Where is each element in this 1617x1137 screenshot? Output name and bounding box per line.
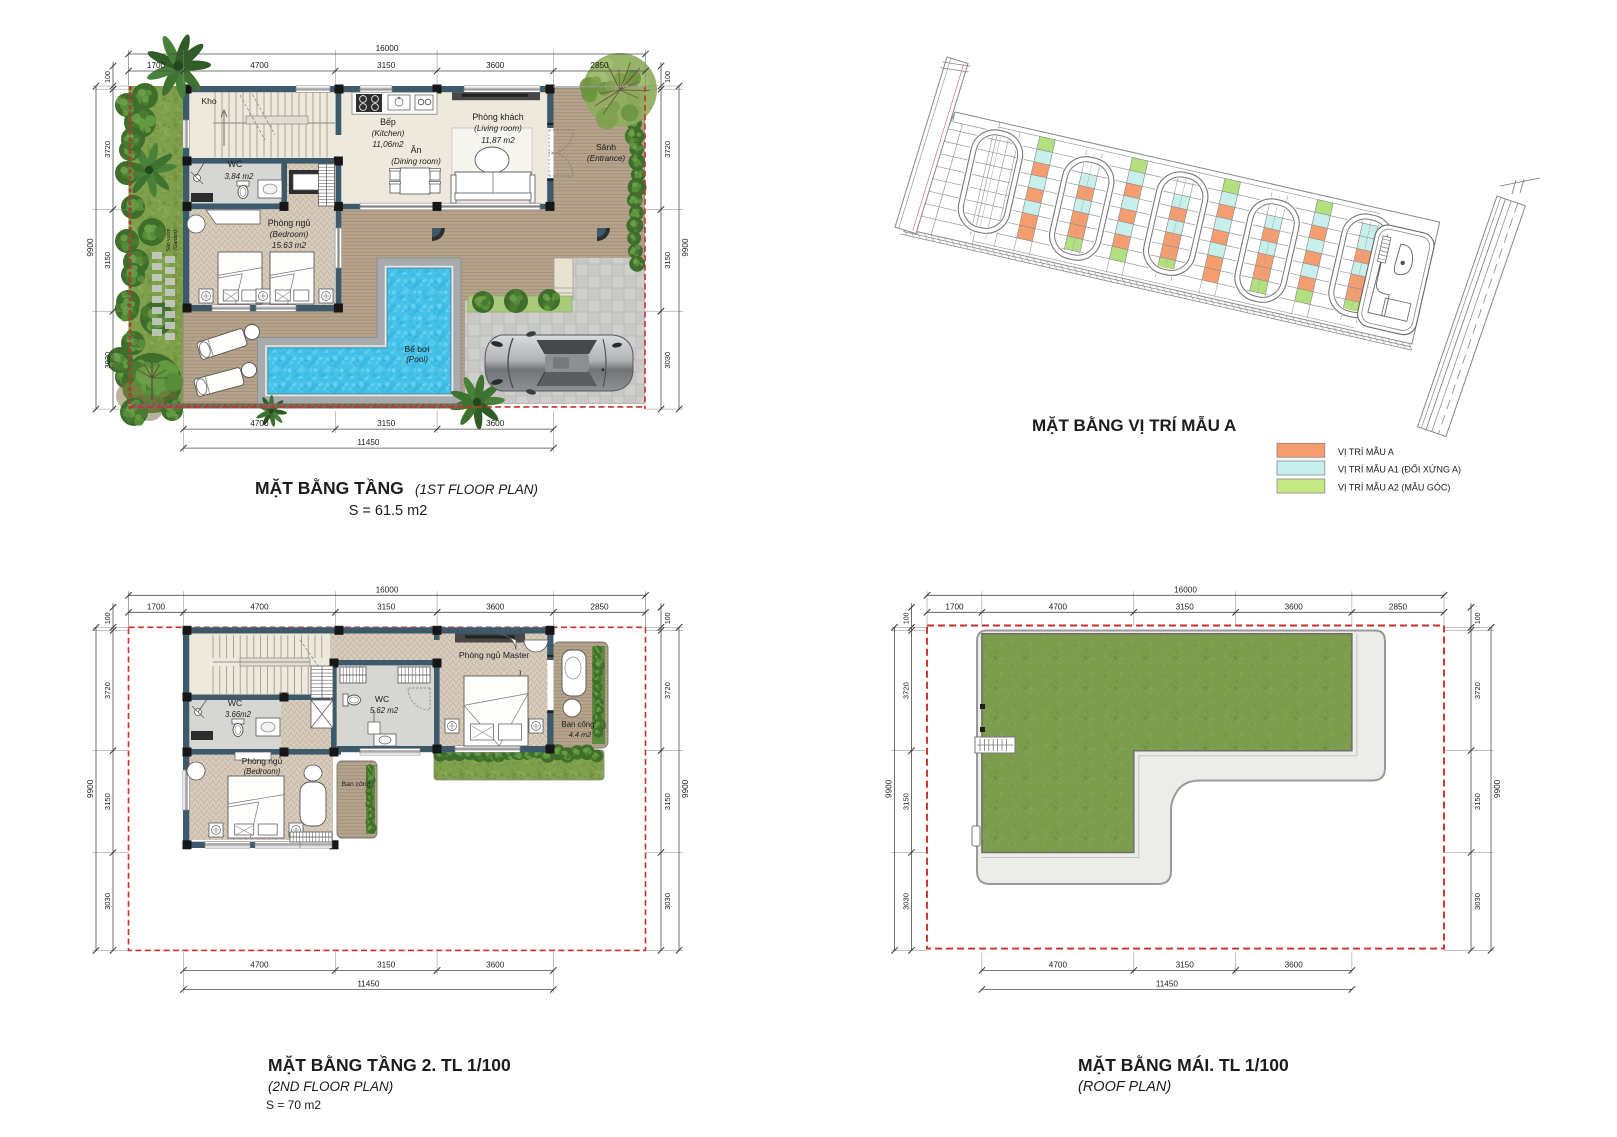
- svg-text:MẶT BẰNG TẦNG: MẶT BẰNG TẦNG: [255, 477, 404, 498]
- svg-text:3720: 3720: [901, 682, 910, 699]
- svg-text:Phòng khách: Phòng khách: [472, 112, 523, 122]
- svg-text:16000: 16000: [376, 44, 399, 53]
- svg-text:(Dining room): (Dining room): [391, 157, 441, 166]
- svg-text:Phòng ngủ Master: Phòng ngủ Master: [459, 650, 529, 660]
- svg-text:3150: 3150: [103, 793, 112, 810]
- svg-text:3030: 3030: [902, 893, 911, 910]
- svg-text:VỊ TRÍ MẪU A2 (MẪU GÓC): VỊ TRÍ MẪU A2 (MẪU GÓC): [1338, 482, 1450, 493]
- svg-text:3150: 3150: [377, 419, 396, 428]
- svg-text:100: 100: [665, 71, 672, 83]
- svg-text:3600: 3600: [1285, 960, 1304, 969]
- svg-text:100: 100: [1475, 612, 1482, 624]
- svg-text:3720: 3720: [103, 141, 112, 158]
- svg-text:(2ND FLOOR PLAN): (2ND FLOOR PLAN): [268, 1079, 393, 1094]
- svg-text:100: 100: [105, 612, 112, 624]
- svg-text:3150: 3150: [663, 252, 672, 269]
- svg-text:3150: 3150: [103, 252, 112, 269]
- svg-text:3030: 3030: [663, 352, 672, 369]
- svg-text:2850: 2850: [590, 61, 609, 70]
- svg-text:9900: 9900: [86, 779, 95, 798]
- svg-text:Phòng ngủ: Phòng ngủ: [268, 218, 311, 228]
- svg-text:3150: 3150: [1176, 602, 1195, 611]
- svg-text:Sảnh: Sảnh: [596, 142, 616, 152]
- svg-text:4700: 4700: [1049, 602, 1068, 611]
- svg-text:Ban công: Ban công: [342, 781, 371, 788]
- svg-text:3600: 3600: [486, 61, 505, 70]
- svg-text:WC: WC: [375, 694, 389, 704]
- svg-text:3.66m2: 3.66m2: [225, 710, 252, 719]
- svg-text:3720: 3720: [663, 682, 672, 699]
- svg-text:(Garden): (Garden): [173, 230, 179, 250]
- svg-text:9900: 9900: [1493, 779, 1502, 798]
- svg-text:3030: 3030: [103, 352, 112, 369]
- svg-text:(Entrance): (Entrance): [587, 154, 625, 163]
- svg-text:100: 100: [665, 612, 672, 624]
- svg-text:1700: 1700: [945, 602, 964, 611]
- svg-text:3150: 3150: [1473, 793, 1482, 810]
- svg-text:4700: 4700: [250, 61, 269, 70]
- svg-text:9900: 9900: [681, 779, 690, 798]
- svg-text:3720: 3720: [663, 141, 672, 158]
- svg-text:Ăn: Ăn: [411, 145, 422, 155]
- svg-text:11450: 11450: [357, 438, 380, 447]
- svg-text:11450: 11450: [357, 979, 380, 988]
- svg-text:1700: 1700: [147, 61, 166, 70]
- svg-text:3600: 3600: [1285, 602, 1304, 611]
- svg-text:3150: 3150: [377, 602, 396, 611]
- svg-text:(ROOF PLAN): (ROOF PLAN): [1078, 1079, 1171, 1095]
- svg-text:(Pool): (Pool): [406, 355, 428, 364]
- svg-text:4700: 4700: [250, 419, 269, 428]
- svg-text:(Bedroom): (Bedroom): [244, 767, 281, 776]
- svg-text:3150: 3150: [663, 793, 672, 810]
- svg-text:2850: 2850: [590, 602, 609, 611]
- svg-text:3600: 3600: [486, 602, 505, 611]
- svg-text:100: 100: [105, 71, 112, 83]
- svg-text:Phòng ngủ: Phòng ngủ: [242, 756, 283, 766]
- svg-text:Kho: Kho: [201, 96, 217, 106]
- svg-text:3150: 3150: [377, 960, 396, 969]
- svg-text:S = 70 m2: S = 70 m2: [266, 1098, 321, 1112]
- svg-text:Bếp: Bếp: [380, 117, 396, 127]
- svg-text:(Bedroom): (Bedroom): [270, 230, 309, 239]
- svg-text:3,84 m2: 3,84 m2: [225, 172, 254, 181]
- svg-text:16000: 16000: [1174, 585, 1197, 594]
- svg-text:(Kitchen): (Kitchen): [372, 129, 405, 138]
- svg-text:Ban công: Ban công: [562, 720, 595, 729]
- svg-text:9900: 9900: [86, 238, 95, 257]
- svg-text:Bể bơi: Bể bơi: [404, 344, 429, 354]
- svg-text:1700: 1700: [147, 602, 166, 611]
- svg-text:3030: 3030: [1473, 893, 1482, 910]
- svg-text:15.63 m2: 15.63 m2: [272, 241, 307, 250]
- svg-text:2850: 2850: [1389, 602, 1408, 611]
- svg-text:MẶT BẰNG MÁI. TL 1/100: MẶT BẰNG MÁI. TL 1/100: [1078, 1054, 1289, 1075]
- svg-text:11,87 m2: 11,87 m2: [481, 136, 515, 145]
- svg-text:4700: 4700: [1049, 960, 1068, 969]
- svg-text:(1ST FLOOR PLAN): (1ST FLOOR PLAN): [415, 482, 538, 497]
- svg-text:VỊ TRÍ MẪU A: VỊ TRÍ MẪU A: [1338, 446, 1394, 457]
- svg-text:Sân vườn: Sân vườn: [166, 228, 172, 251]
- svg-text:3600: 3600: [486, 960, 505, 969]
- svg-text:3720: 3720: [1473, 682, 1482, 699]
- svg-text:3150: 3150: [901, 793, 910, 810]
- svg-text:4.4 m2: 4.4 m2: [569, 730, 592, 739]
- svg-text:S = 61.5 m2: S = 61.5 m2: [349, 503, 428, 519]
- svg-text:4700: 4700: [250, 960, 269, 969]
- svg-text:3030: 3030: [663, 893, 672, 910]
- svg-text:MẶT BẰNG VỊ TRÍ MẪU A: MẶT BẰNG VỊ TRÍ MẪU A: [1032, 416, 1236, 435]
- svg-text:3150: 3150: [1176, 960, 1195, 969]
- svg-text:WC: WC: [228, 159, 243, 169]
- svg-text:3030: 3030: [103, 893, 112, 910]
- svg-text:16000: 16000: [376, 585, 399, 594]
- svg-text:9900: 9900: [681, 238, 690, 257]
- svg-text:3720: 3720: [103, 682, 112, 699]
- svg-text:WC: WC: [228, 698, 242, 708]
- svg-text:(Living room): (Living room): [474, 124, 522, 133]
- svg-text:4700: 4700: [250, 602, 269, 611]
- svg-text:3150: 3150: [377, 61, 396, 70]
- svg-text:9900: 9900: [885, 779, 894, 798]
- svg-text:100: 100: [904, 612, 911, 624]
- svg-text:11,06m2: 11,06m2: [372, 140, 404, 149]
- svg-text:11450: 11450: [1156, 979, 1179, 988]
- svg-text:3600: 3600: [486, 419, 505, 428]
- svg-text:MẶT BẰNG TẦNG 2. TL 1/100: MẶT BẰNG TẦNG 2. TL 1/100: [268, 1054, 511, 1075]
- svg-text:VỊ TRÍ MẪU A1 (ĐỐI XỨNG A): VỊ TRÍ MẪU A1 (ĐỐI XỨNG A): [1338, 464, 1461, 475]
